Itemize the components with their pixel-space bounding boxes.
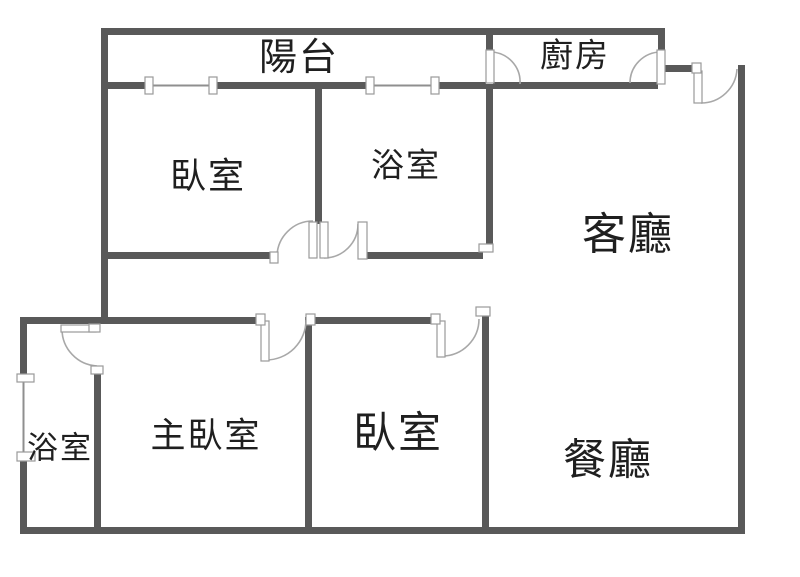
door-jamb	[270, 252, 278, 263]
wall-bathroom-upper-bottom	[367, 252, 483, 259]
door-arc-bedroom-lower	[442, 319, 479, 356]
wall-kitchen-right-top	[658, 28, 665, 52]
door-leaf-bedroom-upper	[309, 222, 317, 258]
door-jamb	[431, 314, 440, 324]
door-jamb	[479, 244, 493, 252]
door-arc-bathroom-upper	[324, 224, 358, 258]
wall-bed-dining-divider	[482, 316, 489, 528]
door-arc-bathroom-lower	[62, 329, 97, 366]
window-jamb	[145, 77, 153, 94]
window-jamb	[366, 77, 374, 94]
door-arc-kitchen-right	[630, 52, 661, 83]
wall-balcony-sill-c	[439, 82, 486, 89]
window-jamb	[17, 374, 34, 382]
wall-bottom-outer	[20, 527, 745, 534]
wall-bath-living-divider	[486, 84, 493, 244]
room-label-kitchen: 廚房	[540, 39, 610, 72]
wall-master-bed-divider	[305, 317, 312, 528]
window-jamb	[209, 77, 217, 94]
door-leaf-master-bedroom	[261, 321, 269, 361]
wall-left-upper-outer	[101, 28, 108, 324]
door-arc-bedroom-upper	[277, 221, 313, 257]
door-arc-entrance	[701, 69, 737, 103]
window-jamb	[431, 77, 439, 94]
room-label-balcony: 陽台	[259, 39, 339, 77]
door-leaf-entrance	[694, 71, 702, 103]
room-label-living-room: 客廳	[582, 213, 674, 257]
door-leaf-bedroom-lower	[437, 321, 445, 357]
wall-left-lower-outer-a	[20, 317, 27, 377]
door-jamb	[306, 314, 315, 325]
wall-balcony-sill-b	[217, 82, 367, 89]
room-label-bathroom-upper: 浴室	[371, 149, 441, 182]
door-leaf-bathroom-upper	[320, 222, 328, 258]
room-label-bedroom-upper: 臥室	[170, 158, 246, 194]
wall-kitchen-bottom	[493, 82, 658, 89]
door-jamb	[358, 222, 367, 259]
wall-top-outer	[101, 28, 665, 35]
floor-plan: 陽台 廚房 臥室 浴室 客廳 浴室 主臥室 臥室 餐廳	[0, 0, 800, 577]
wall-kitchen-left-top	[486, 28, 493, 52]
door-jamb	[91, 366, 103, 374]
floor-plan-drawing	[0, 0, 800, 577]
door-leaf-kitchen-left	[486, 50, 494, 83]
wall-left-lower-outer-b	[20, 458, 27, 534]
door-leaf-kitchen-right	[657, 50, 665, 84]
room-label-dining-room: 餐廳	[563, 440, 653, 483]
door-jamb	[89, 324, 100, 332]
windows	[17, 77, 439, 461]
door-arc-master-bedroom	[266, 320, 306, 360]
room-label-master-bedroom: 主臥室	[150, 419, 261, 454]
room-label-bedroom-lower: 臥室	[353, 413, 443, 456]
room-label-bathroom-lower: 浴室	[27, 433, 93, 464]
door-jamb	[256, 314, 265, 325]
door-jamb	[476, 307, 490, 316]
wall-bed-bath-divider	[315, 84, 322, 224]
wall-bedroom-upper-bottom	[101, 252, 272, 259]
wall-hall-bottom-b	[307, 317, 433, 324]
door-jamb	[692, 63, 701, 73]
wall-hall-bottom-a	[20, 317, 257, 324]
wall-bath-master-divider	[94, 372, 101, 528]
wall-right-outer	[738, 65, 745, 534]
